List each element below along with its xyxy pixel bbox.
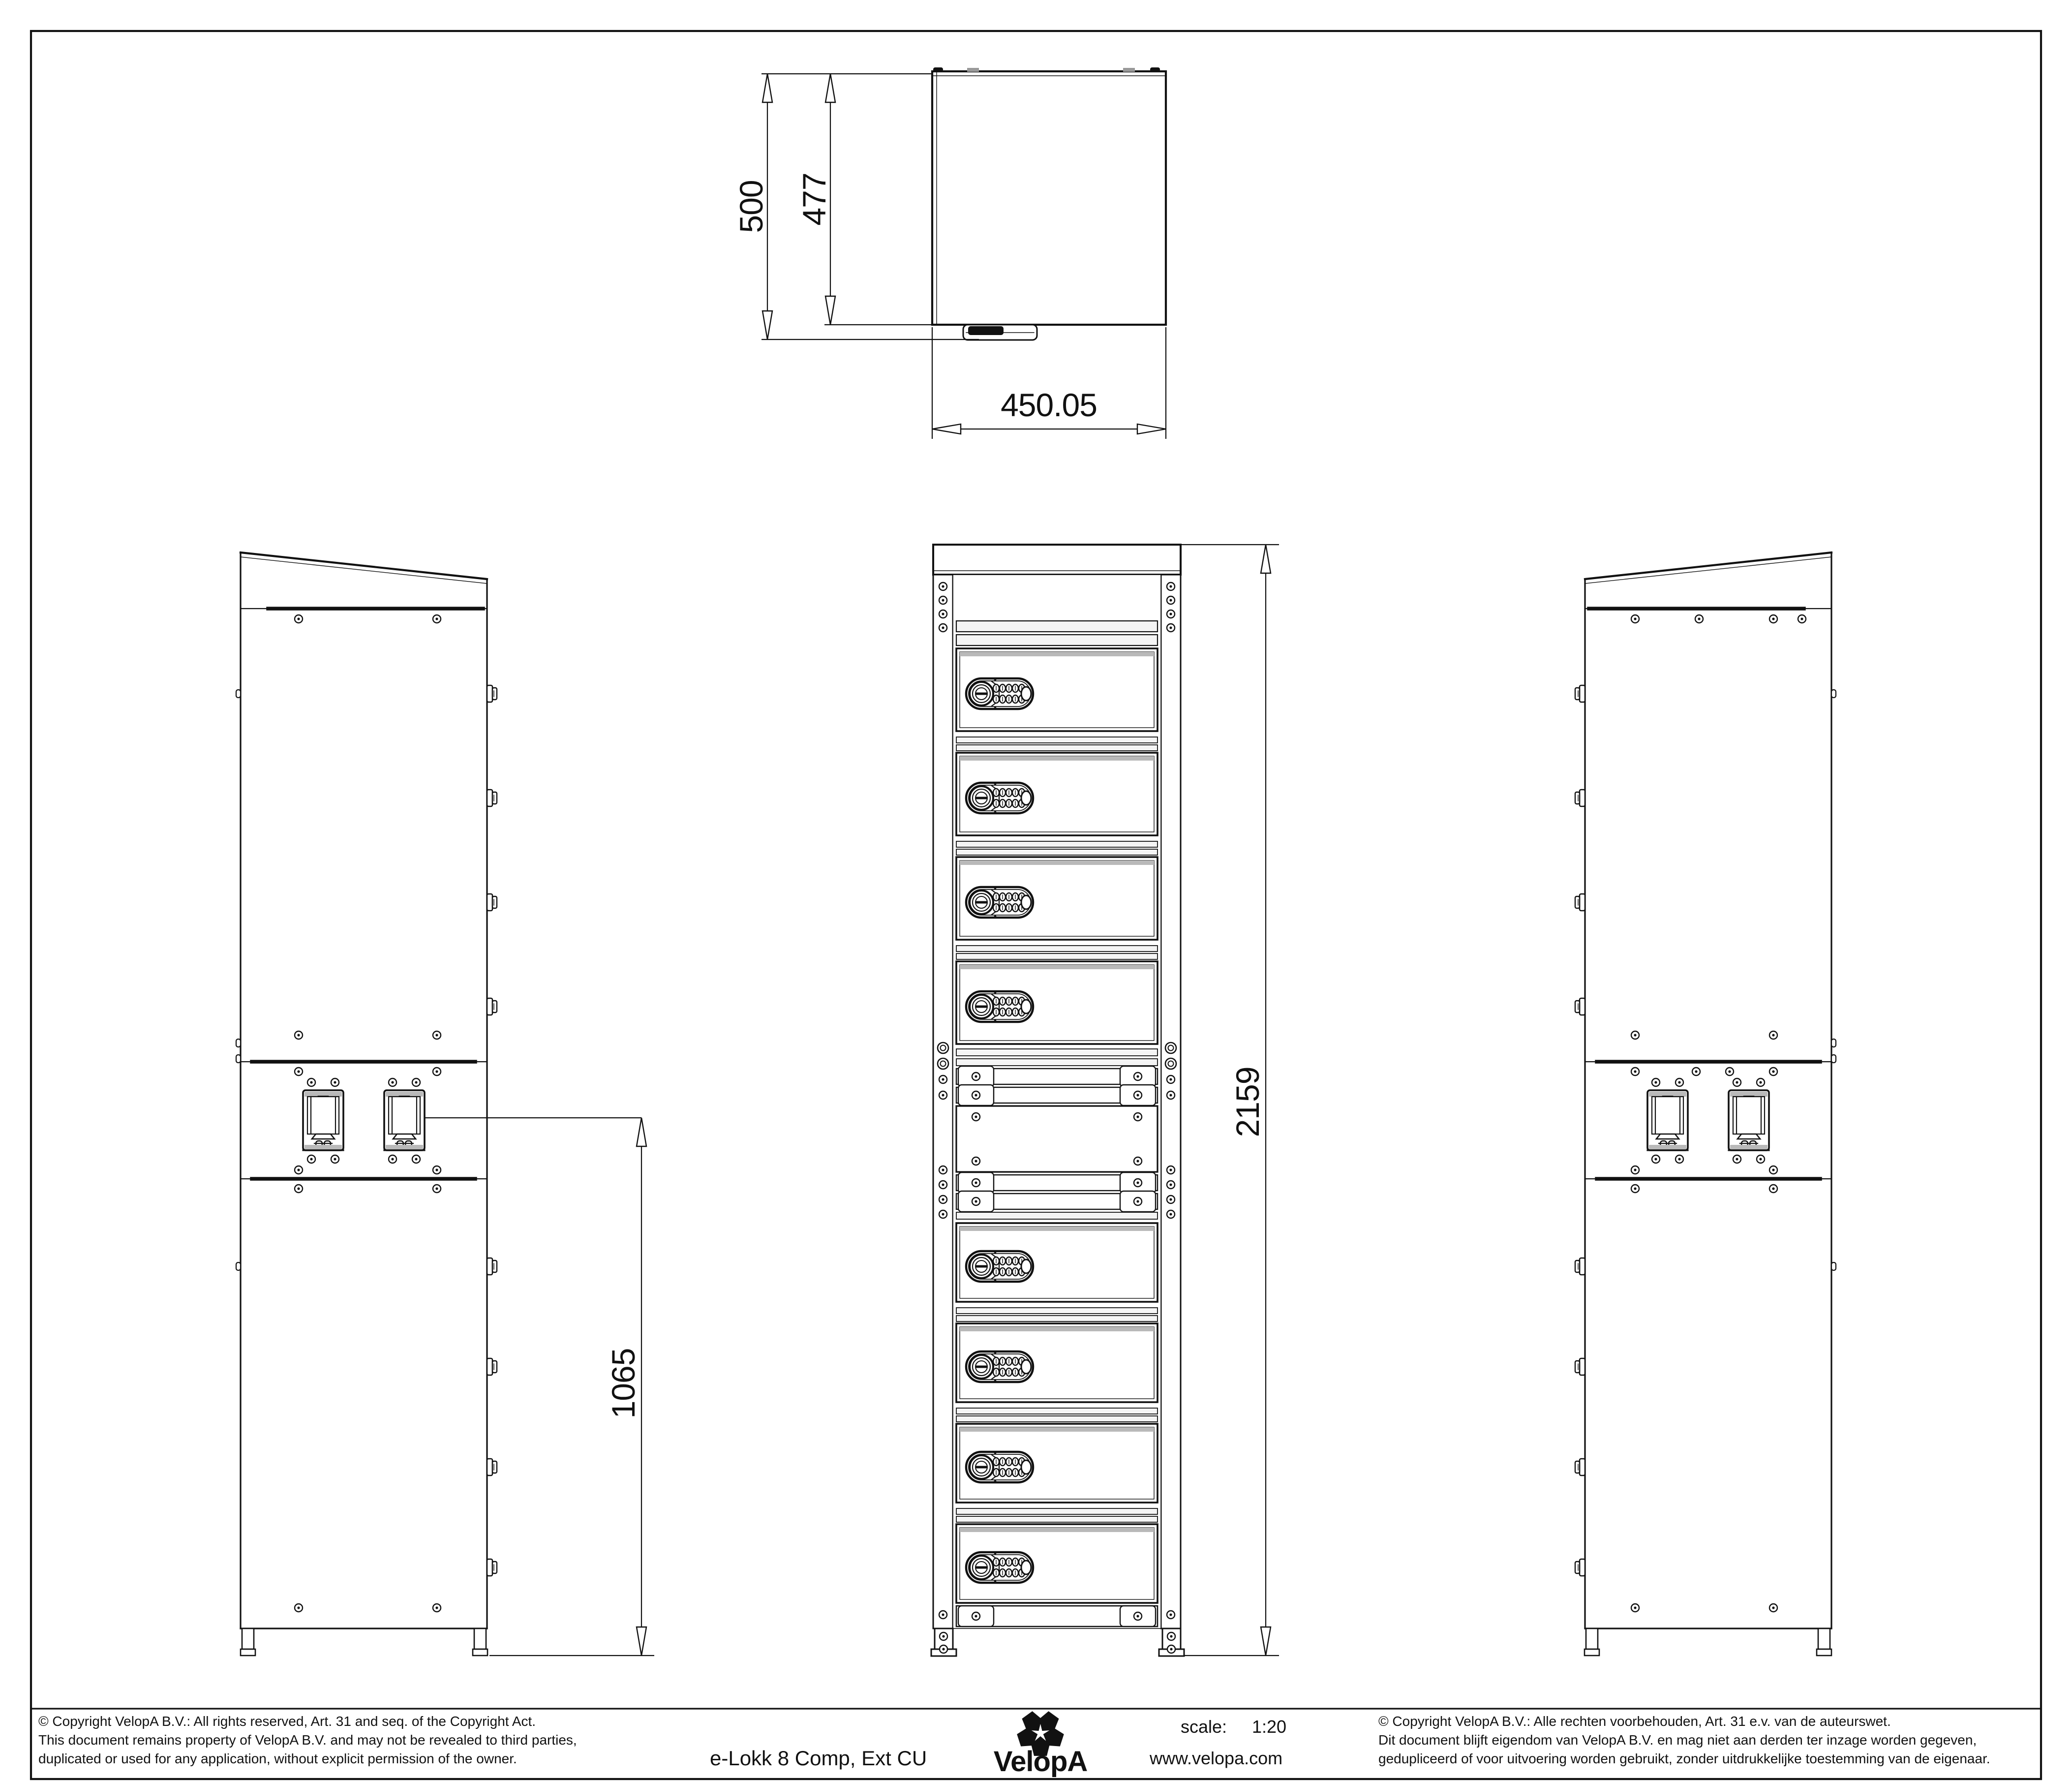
drawing-title: e-Lokk 8 Comp, Ext CU (710, 1747, 927, 1770)
locker-door-2 (956, 753, 1158, 835)
copyright-english: © Copyright VelopA B.V.: All rights rese… (38, 1714, 577, 1766)
dim-depth-inner: 477 (796, 74, 932, 325)
dim-cu-height: 1065 (425, 1118, 654, 1656)
dim-depth-inner-label: 477 (796, 173, 832, 225)
dim-width: 450.05 (932, 327, 1166, 439)
copyright-en-line1: © Copyright VelopA B.V.: All rights rese… (38, 1714, 536, 1729)
scale-value: 1:20 (1252, 1717, 1286, 1737)
locker-door-4 (956, 961, 1158, 1044)
latch-detail (963, 325, 1037, 340)
locker-door-6 (956, 1323, 1158, 1402)
drawing-sheet: 500 477 450.05 (0, 0, 2072, 1781)
dim-overall-height: 2159 (1181, 545, 1279, 1656)
locker-door-8 (956, 1524, 1158, 1603)
scale-info: scale: 1:20 www.velopa.com (1149, 1717, 1286, 1768)
brand-name: VelopA (994, 1746, 1088, 1778)
locker-door-1 (956, 648, 1158, 731)
copyright-dutch: © Copyright VelopA B.V.: Alle rechten vo… (1378, 1714, 1990, 1766)
copyright-nl-line3: gedupliceerd of voor uitvoering worden g… (1378, 1751, 1990, 1766)
control-unit-section (956, 1049, 1158, 1219)
copyright-en-line2: This document remains property of VelopA… (38, 1732, 577, 1748)
website-link: www.velopa.com (1149, 1748, 1282, 1768)
technical-drawing-canvas: 500 477 450.05 (0, 0, 2072, 1781)
right-side-view (1575, 553, 1836, 1656)
velopa-logo: VelopA (994, 1710, 1088, 1778)
top-view: 500 477 450.05 (733, 67, 1166, 439)
left-side-view: 1065 (236, 553, 654, 1656)
locker-door-7 (956, 1424, 1158, 1503)
locker-door-5 (956, 1223, 1158, 1302)
dim-width-label: 450.05 (1001, 387, 1097, 423)
title-block: © Copyright VelopA B.V.: All rights rese… (38, 1710, 1990, 1778)
copyright-nl-line2: Dit document blijft eigendom van VelopA … (1378, 1732, 1977, 1748)
scale-label: scale: (1181, 1717, 1227, 1737)
locker-door-3 (956, 857, 1158, 940)
dim-depth-label: 500 (733, 180, 769, 233)
copyright-nl-line1: © Copyright VelopA B.V.: Alle rechten vo… (1378, 1714, 1891, 1729)
copyright-en-line3: duplicated or used for any application, … (38, 1751, 517, 1766)
dim-cu-height-label: 1065 (605, 1349, 641, 1419)
dim-overall-height-label: 2159 (1229, 1067, 1266, 1137)
front-view: 2159 (931, 545, 1279, 1656)
